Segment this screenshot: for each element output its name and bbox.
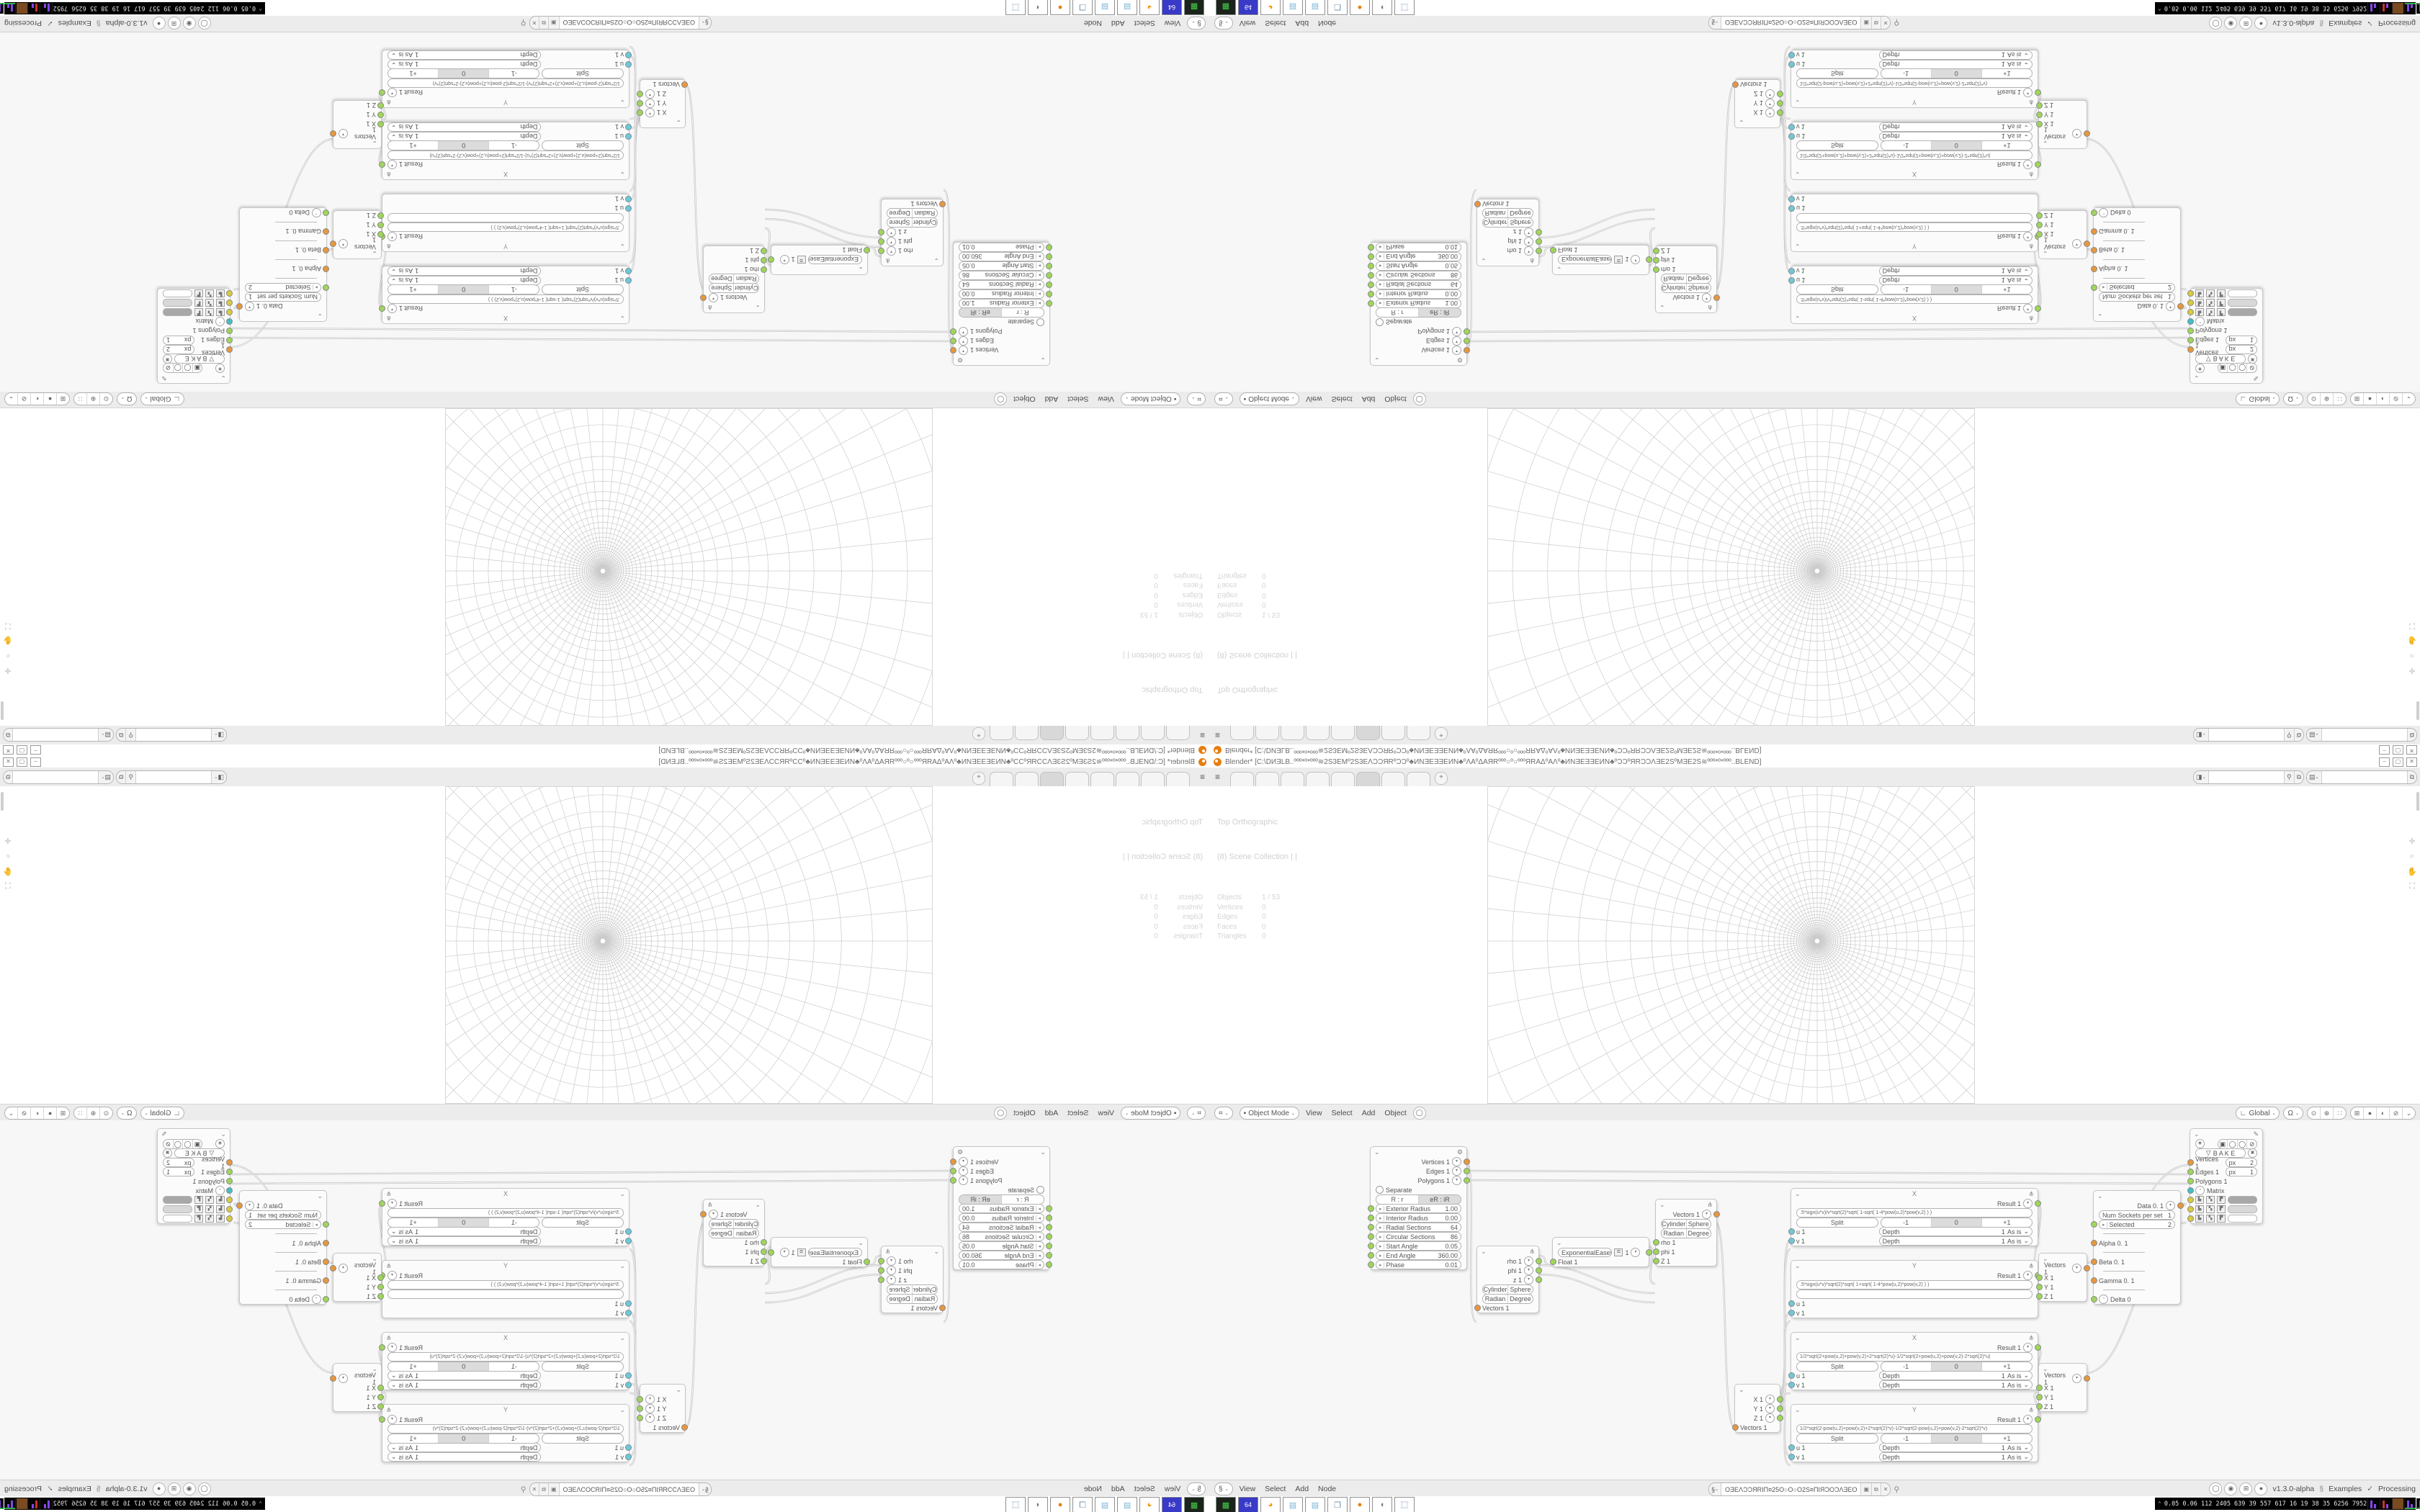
node-f3[interactable]: ⌄X⋔Result 1▾1/2*sqrt(2+pow(u,2)+pow(v,2)… [1791, 122, 2038, 180]
depth-dropdown[interactable]: Depth1As is⌄ [1879, 132, 2033, 141]
scene-name-field[interactable] [136, 729, 211, 741]
processing-toggle[interactable]: Processing [2378, 1485, 2416, 1493]
scene-picker[interactable]: ◨⌄ ⚲ ⧉ [2193, 770, 2304, 784]
node-polar_out[interactable]: ⌄⋔rho 1▾phi 1▾z 1▾CylinderSphereRadianDe… [881, 199, 944, 266]
formula-input[interactable] [1796, 1290, 2033, 1299]
socket-green[interactable] [1777, 1396, 1783, 1403]
px-size-field[interactable]: px2 [2226, 1158, 2257, 1167]
socket-green[interactable] [637, 1396, 644, 1403]
px-size-field[interactable]: px2 [163, 1158, 194, 1167]
number-field[interactable]: Num Sockets per set1 [245, 1210, 321, 1220]
socket-orange[interactable] [951, 347, 957, 354]
sverchok-header-button[interactable]: ● [153, 17, 166, 30]
floppy-64-icon[interactable]: 64 [1238, 0, 1258, 15]
socket-green[interactable] [1536, 229, 1542, 235]
split-button[interactable]: Split [542, 1362, 624, 1372]
socket-green[interactable] [2036, 121, 2043, 127]
gizmo-icon[interactable]: ⌕ [2407, 852, 2417, 861]
floppy-64-icon[interactable]: 64 [1162, 0, 1182, 15]
toggle-pair[interactable]: CylinderSphere [709, 1219, 759, 1229]
sverchok-header-button[interactable]: ◉ [183, 1482, 196, 1495]
viewport-menu-item[interactable]: Object [1384, 395, 1406, 403]
viewport-gizmos[interactable]: ✛⌕✋⛶ [2407, 621, 2417, 675]
emulator-icon[interactable]: ▦ [1216, 0, 1236, 15]
ease-mode-dropdown[interactable]: ExponentialEaseIn⌄ [808, 1248, 862, 1257]
firefox-icon[interactable]: ◕ [1260, 0, 1281, 15]
socket-orange[interactable] [701, 1211, 707, 1218]
socket-green[interactable] [2036, 1394, 2043, 1400]
toggle-pair[interactable]: R : reR : iR [959, 1194, 1044, 1205]
fake-user-icon[interactable]: ▣ [1860, 1483, 1871, 1495]
socket-orange[interactable] [2084, 130, 2090, 137]
examples-menu[interactable]: Examples [2329, 19, 2362, 27]
mode-dropdown[interactable]: ▪Object Mode⌄ [1121, 392, 1180, 405]
node-editor-menu-item[interactable]: View [1165, 19, 1181, 27]
depth-dropdown[interactable]: Depth1As is⌄ [387, 60, 541, 69]
socket-orange[interactable] [2177, 303, 2184, 310]
socket-green[interactable] [2036, 212, 2043, 219]
workspace-tab[interactable] [1255, 726, 1279, 740]
node-torus[interactable]: ⌄⚙Vertices 1▾Edges 1▾Polygons 1▾Separate… [953, 1146, 1050, 1270]
socket-green[interactable] [1368, 1243, 1374, 1249]
socket-green[interactable] [637, 109, 644, 116]
number-field[interactable]: ▸Phase0.01 [1376, 243, 1461, 252]
workspace-tab[interactable] [990, 772, 1013, 786]
node-vecin2[interactable]: ⌄Vectors 1▾X 1Y 1Z 1 [333, 1363, 382, 1412]
orientation-dropdown[interactable]: ∟Global⌄ [2236, 1107, 2280, 1120]
formula-input[interactable]: 1/2*sqrt(2+pow(u,2)+pow(v,2)+2*sqrt(2)*u… [387, 150, 624, 160]
speaker-icon[interactable]: ◖ [1028, 0, 1048, 15]
split-button[interactable]: Split [1796, 69, 1878, 79]
socket-green[interactable] [1464, 1177, 1470, 1184]
unlink-icon[interactable]: ✕ [1881, 1483, 1891, 1495]
examples-menu[interactable]: Examples [2329, 1485, 2362, 1493]
viewport-menu-item[interactable]: View [1306, 395, 1322, 403]
number-field[interactable]: ▸Start Angle0.05 [1376, 261, 1461, 271]
node-easein[interactable]: ⌄ExponentialEaseIn⌄⧉1▾Float 1 [1552, 245, 1649, 275]
node-viewer[interactable]: ⌄✎◉▣◯◯⊘▽B A K E▣Vertices 1px2Edges 1px1P… [2190, 288, 2263, 384]
gizmo-icon[interactable]: ⛶ [2407, 621, 2417, 630]
number-field[interactable]: ▸Exterior Radius1.00 [1376, 1204, 1461, 1213]
viewport-gizmos[interactable]: ✛⌕✋⛶ [2407, 837, 2417, 891]
node-header[interactable]: ⌄X⋔ [382, 169, 629, 179]
socket-green[interactable] [1777, 1415, 1783, 1421]
node-f2[interactable]: ⌄Y⋔Result 1▾.5*sign(u*v)*sqrt(2)*sqrt( 1… [1791, 1260, 2038, 1318]
node-header[interactable]: ⌄⋔ [1477, 256, 1538, 266]
socket-green[interactable] [380, 1416, 386, 1423]
socket-cyan[interactable] [1788, 277, 1795, 284]
scrollbar-nub[interactable] [2416, 792, 2419, 811]
socket-green[interactable] [1368, 1261, 1374, 1268]
depth-dropdown[interactable]: Depth1As is⌄ [1879, 1380, 2033, 1390]
toggle-pair[interactable]: RadianDegree [709, 1228, 759, 1238]
number-field[interactable]: ▸Start Angle0.05 [959, 261, 1044, 271]
fake-user-icon[interactable]: ▣ [1860, 17, 1871, 29]
node-editor-menu-item[interactable]: Add [1111, 1485, 1125, 1493]
node-torus[interactable]: ⌄⚙Vertices 1▾Edges 1▾Polygons 1▾Separate… [953, 242, 1050, 366]
split-button[interactable]: Split [1796, 1434, 1878, 1444]
blender-icon[interactable]: ● [1350, 0, 1370, 15]
socket-green[interactable] [1464, 328, 1470, 335]
socket-green[interactable] [1653, 257, 1659, 264]
color-swatch[interactable] [163, 289, 192, 297]
sverchok-header-button[interactable]: ◉ [2224, 1482, 2237, 1495]
node-header[interactable]: ⌄Y⋔ [382, 1405, 629, 1415]
socket-green[interactable] [2187, 1178, 2194, 1184]
depth-dropdown[interactable]: Depth1As is⌄ [387, 1236, 541, 1246]
sverchok-header-button[interactable]: ⊞ [168, 1482, 181, 1495]
toggle-pair[interactable]: RadianDegree [1482, 1294, 1533, 1304]
socket-green[interactable] [1646, 1249, 1652, 1256]
sverchok-header-button[interactable]: ◉ [2224, 17, 2237, 30]
socket-orange[interactable] [2187, 1159, 2194, 1166]
depth-dropdown[interactable]: Depth1As is⌄ [1879, 266, 2033, 276]
socket-green[interactable] [768, 256, 775, 263]
workspace-tab[interactable] [1116, 772, 1139, 786]
socket-green[interactable] [879, 1267, 885, 1274]
sverchok-header-button[interactable]: ● [2254, 17, 2267, 30]
workspace-tab[interactable] [1331, 726, 1355, 740]
minimize-button[interactable]: – [30, 745, 41, 755]
node-f1[interactable]: ⌄X⋔Result 1▾.5*sign(u*v)/v*sqrt(2)*sqrt(… [1791, 1188, 2038, 1246]
offset-stepper[interactable]: -10+1 [1881, 141, 2033, 151]
number-field[interactable]: ▸Exterior Radius1.00 [959, 299, 1044, 308]
socket-green[interactable] [637, 1405, 644, 1412]
display-mode-icons[interactable]: ▣◯◯⊘ [2218, 364, 2257, 374]
socket-orange[interactable] [1713, 1211, 1720, 1218]
socket-green[interactable] [1536, 1277, 1542, 1283]
viewport-3d[interactable]: Top Orthographic (8) Scene Collection | … [1210, 408, 2420, 726]
viewport-menu-item[interactable]: View [1098, 1109, 1114, 1117]
node-vecout[interactable]: ⌄X 1▾Y 1▾Z 1▾Vectors 1 [640, 79, 686, 128]
socket-green[interactable] [2035, 161, 2041, 168]
node-torus[interactable]: ⌄⚙Vertices 1▾Edges 1▾Polygons 1▾Separate… [1370, 1146, 1467, 1270]
number-field[interactable]: Num Sockets per set1 [2099, 1210, 2175, 1220]
node-editor-menu-item[interactable]: View [1165, 1485, 1181, 1493]
sverchok-header-button[interactable]: ◯ [198, 1482, 211, 1495]
node-easein[interactable]: ⌄ExponentialEaseIn⌄⧉1▾Float 1 [771, 245, 868, 275]
node-header[interactable]: ⌄Y⋔ [382, 1261, 629, 1271]
node-f3[interactable]: ⌄X⋔Result 1▾1/2*sqrt(2+pow(u,2)+pow(v,2)… [1791, 1332, 2038, 1390]
socket-orange[interactable] [1464, 347, 1470, 354]
node-header[interactable]: ⌄X⋔ [1791, 313, 2038, 323]
node-easein[interactable]: ⌄ExponentialEaseIn⌄⧉1▾Float 1 [1552, 1237, 1649, 1267]
sverchok-header-button[interactable]: ◉ [183, 17, 196, 30]
split-button[interactable]: Split [1796, 1362, 1878, 1372]
number-field[interactable]: ▸Start Angle0.05 [959, 1241, 1044, 1251]
checkbox[interactable] [1376, 318, 1384, 326]
view-layer-picker[interactable]: ▤⌄ ⧉ [3, 770, 114, 784]
socket-green[interactable] [2036, 222, 2043, 228]
depth-dropdown[interactable]: Depth1As is⌄ [1879, 276, 2033, 285]
socket-orange[interactable] [331, 1375, 337, 1382]
node-header[interactable]: ⌄Y⋔ [382, 241, 629, 251]
sverchok-header-button[interactable]: ◯ [198, 17, 211, 30]
node-data[interactable]: ⌄Data 0. 1▾Num Sockets per set1▸Selected… [239, 207, 327, 322]
socket-green[interactable] [2187, 337, 2194, 343]
add-workspace-button[interactable]: + [972, 772, 985, 785]
toggle-pair[interactable]: CylinderSphere [1482, 1284, 1533, 1295]
socket-green[interactable] [2035, 1416, 2041, 1423]
split-button[interactable]: Split [542, 285, 624, 295]
node-header[interactable]: ⌄ [640, 1385, 685, 1395]
notepad-icon[interactable]: ▤ [1305, 0, 1325, 15]
node-f4[interactable]: ⌄Y⋔Result 1▾1/2*sqrt(2-pow(u,2)+pow(v,2)… [1791, 1404, 2038, 1462]
gizmo-icon[interactable]: ✋ [3, 636, 13, 645]
workspace-tab[interactable] [1281, 772, 1304, 786]
menu-hamburger-icon[interactable]: ≡ [1200, 772, 1205, 782]
scene-name-field[interactable] [2209, 771, 2284, 783]
socket-green[interactable] [2036, 1293, 2043, 1300]
viewport-menu-item[interactable]: Object [1013, 1109, 1035, 1117]
gizmo-icon[interactable]: ⌕ [2407, 651, 2417, 660]
sverchok-header-button[interactable]: ◯ [2209, 17, 2222, 30]
node-header[interactable]: ⌄Y⋔ [382, 97, 629, 107]
node-header[interactable]: ⌄ [640, 117, 685, 127]
number-field[interactable]: ▸Radial Sections64 [959, 280, 1044, 289]
menu-hamburger-icon[interactable]: ≡ [1215, 772, 1220, 782]
offset-stepper[interactable]: -10+1 [1881, 1434, 2033, 1444]
processing-toggle[interactable]: Processing [4, 19, 42, 27]
split-button[interactable]: Split [1796, 1218, 1878, 1228]
socket-green[interactable] [2035, 1344, 2041, 1351]
node-editor-type-button[interactable]: §⌄ [1187, 1482, 1206, 1495]
mode-dropdown[interactable]: ▪Object Mode⌄ [1121, 1107, 1180, 1120]
notepad-icon[interactable]: ▤ [1095, 1497, 1115, 1512]
node-editor[interactable]: ⌄⚙Vertices 1▾Edges 1▾Polygons 1▾Separate… [1210, 1120, 2420, 1480]
workspace-tab[interactable] [1255, 772, 1279, 786]
split-button[interactable]: Split [542, 1434, 624, 1444]
node-vecout[interactable]: ⌄X 1▾Y 1▾Z 1▾Vectors 1 [1734, 1384, 1780, 1433]
formula-input[interactable]: 1/2*sqrt(2-pow(u,2)+pow(v,2)+2*sqrt(2)*v… [387, 78, 624, 88]
socket-cyan[interactable] [1788, 196, 1795, 202]
node-header[interactable]: ⌄Y⋔ [1791, 1261, 2038, 1271]
px-size-field[interactable]: px1 [163, 1167, 194, 1176]
node-editor-menu-item[interactable]: Select [1265, 1485, 1286, 1493]
node-editor-menu-item[interactable]: Select [1134, 1485, 1155, 1493]
checkbox[interactable] [1036, 318, 1044, 326]
depth-dropdown[interactable]: Depth1As is⌄ [387, 1443, 541, 1452]
toggle-pair[interactable]: CylinderSphere [887, 1284, 938, 1295]
formula-input[interactable]: 1/2*sqrt(2-pow(u,2)+pow(v,2)+2*sqrt(2)*v… [1796, 78, 2033, 88]
socket-green[interactable] [1368, 1224, 1374, 1230]
split-button[interactable]: Split [1796, 141, 1878, 151]
proportional-edit-icons[interactable]: ⊙⊕∷ [73, 1107, 113, 1120]
depth-dropdown[interactable]: Depth1As is⌄ [1879, 122, 2033, 132]
blender-icon[interactable]: ● [1050, 1497, 1070, 1512]
tool-circle-icon[interactable]: ◯ [994, 392, 1007, 405]
ease-mode-dropdown[interactable]: ExponentialEaseIn⌄ [1558, 255, 1612, 264]
node-data[interactable]: ⌄Data 0. 1▾Num Sockets per set1▸Selected… [2093, 207, 2181, 322]
socket-green[interactable] [380, 161, 386, 168]
scene-name-field[interactable] [136, 771, 211, 783]
socket-orange[interactable] [1732, 1424, 1739, 1431]
window2-icon[interactable]: ⿴ [1005, 0, 1026, 15]
socket-green[interactable] [2035, 305, 2041, 312]
socket-cyan[interactable] [1788, 133, 1795, 140]
socket-green[interactable] [951, 328, 957, 335]
processing-toggle[interactable]: Processing [2378, 19, 2416, 27]
socket-green[interactable] [1777, 100, 1783, 107]
node-data[interactable]: ⌄Data 0. 1▾Num Sockets per set1▸Selected… [239, 1190, 327, 1305]
display-mode-icons[interactable]: ▣◯◯⊘ [163, 1139, 202, 1149]
toggle-pair[interactable]: RadianDegree [887, 209, 938, 219]
scene-pin-icon[interactable]: ⚲ [126, 771, 136, 783]
socket-cyan[interactable] [1788, 205, 1795, 212]
node-header[interactable]: ⌄ [771, 264, 867, 274]
number-field[interactable]: ▸Selected2 [245, 1220, 321, 1229]
node-header[interactable]: ⌄ [2094, 1191, 2180, 1201]
minimize-button[interactable]: – [2379, 757, 2390, 767]
formula-input[interactable]: 1/2*sqrt(2-pow(u,2)+pow(v,2)+2*sqrt(2)*v… [1796, 1424, 2033, 1434]
px-size-field[interactable]: px1 [2226, 1167, 2257, 1176]
toggle-pair[interactable]: CylinderSphere [1482, 218, 1533, 228]
workspace-tab[interactable] [1281, 726, 1304, 740]
split-button[interactable]: Split [542, 69, 624, 79]
proportional-edit-icons[interactable]: ⊙⊕∷ [2307, 392, 2347, 405]
color-swatch[interactable] [163, 1205, 192, 1213]
node-header[interactable]: ⌄✎ [158, 373, 230, 383]
speaker-icon[interactable]: ◖ [1028, 1497, 1048, 1512]
toggle-pair[interactable]: RadianDegree [1661, 274, 1711, 284]
scene-picker[interactable]: ◨⌄ ⚲ ⧉ [116, 728, 227, 742]
depth-dropdown[interactable]: Depth1As is⌄ [387, 132, 541, 141]
viewport-menu-item[interactable]: Add [1362, 1109, 1376, 1117]
orientation-dropdown[interactable]: ∟Global⌄ [2236, 392, 2280, 405]
node-header[interactable]: ⌄⋔ [1477, 1246, 1538, 1256]
socket-green[interactable] [879, 238, 885, 245]
node-header[interactable]: ⌄⋔ [704, 302, 764, 312]
socket-yellow[interactable] [2187, 300, 2194, 306]
viewport-menu-item[interactable]: Add [1045, 1109, 1059, 1117]
viewport-menu-item[interactable]: Add [1362, 395, 1376, 403]
socket-orange[interactable] [2091, 266, 2097, 272]
node-polar_out[interactable]: ⌄⋔rho 1▾phi 1▾z 1▾CylinderSphereRadianDe… [1476, 199, 1539, 266]
minimize-button[interactable]: – [30, 757, 41, 767]
node-f1[interactable]: ⌄X⋔Result 1▾.5*sign(u*v)/v*sqrt(2)*sqrt(… [1791, 266, 2038, 324]
notepad-icon[interactable]: ▤ [1117, 0, 1137, 15]
blender-icon[interactable]: ● [1350, 1497, 1370, 1512]
node-header[interactable]: ⌄ [1553, 1238, 1649, 1248]
workspace-tab[interactable] [1166, 772, 1190, 786]
depth-dropdown[interactable]: Depth1As is⌄ [1879, 1443, 2033, 1452]
node-header[interactable]: ⌄⋔ [1656, 1200, 1716, 1210]
number-field[interactable]: ▸End Angle360.00 [959, 1251, 1044, 1260]
socket-yellow[interactable] [2187, 309, 2194, 315]
toggle-pair[interactable]: CylinderSphere [709, 284, 759, 294]
fake-user-icon[interactable]: ▣ [549, 1483, 560, 1495]
socket-orange[interactable] [331, 130, 337, 137]
editor-type-button[interactable]: ⌗⌄ [1214, 392, 1233, 405]
formula-input[interactable]: 1/2*sqrt(2+pow(u,2)+pow(v,2)+2*sqrt(2)*u… [387, 1352, 624, 1362]
view-layer-picker[interactable]: ▤⌄ ⧉ [2306, 770, 2417, 784]
proportional-edit-icons[interactable]: ⊙⊕∷ [2307, 1107, 2347, 1120]
node-polar_in[interactable]: ⌄⋔Vectors 1▾CylinderSphereRadianDegreerh… [1655, 1199, 1717, 1266]
socket-cyan[interactable] [1788, 268, 1795, 274]
socket-cyan[interactable] [1788, 1372, 1795, 1379]
workspace-tab[interactable] [1356, 772, 1380, 786]
socket-green[interactable] [380, 89, 386, 96]
node-header[interactable]: ⌄⚙ [1371, 355, 1466, 365]
workspace-tab[interactable] [1407, 772, 1430, 786]
restore-button[interactable]: ▢ [2393, 757, 2403, 767]
gizmo-icon[interactable]: ✋ [2407, 636, 2417, 645]
shading-mode-icons[interactable]: ⊞●◐⊘⌄ [4, 392, 70, 405]
depth-dropdown[interactable]: Depth1As is⌄ [387, 122, 541, 132]
socket-orange[interactable] [701, 294, 707, 301]
workspace-tab[interactable] [1306, 726, 1330, 740]
viewport-menu-item[interactable]: Object [1384, 1109, 1406, 1117]
node-vecin1[interactable]: ⌄Vectors 1▾X 1Y 1Z 1 [333, 1253, 382, 1302]
node-header[interactable]: ⌄X⋔ [382, 1189, 629, 1199]
socket-green[interactable] [2036, 112, 2043, 118]
workspace-tab[interactable] [1015, 726, 1039, 740]
window-icon[interactable]: ❐ [1327, 0, 1348, 15]
socket-green[interactable] [1777, 1405, 1783, 1412]
socket-cyan[interactable] [1788, 1228, 1795, 1235]
gizmo-icon[interactable]: ✛ [3, 666, 13, 675]
socket-green[interactable] [380, 305, 386, 312]
node-polar_out[interactable]: ⌄⋔rho 1▾phi 1▾z 1▾CylinderSphereRadianDe… [1476, 1246, 1539, 1313]
socket-green[interactable] [2035, 1200, 2041, 1207]
socket-orange[interactable] [2091, 1240, 2097, 1246]
socket-green[interactable] [1368, 253, 1374, 260]
checkbox[interactable] [1376, 1186, 1384, 1194]
socket-orange[interactable] [1474, 201, 1481, 207]
socket-orange[interactable] [1474, 1305, 1481, 1311]
proportional-edit-icons[interactable]: ⊙⊕∷ [73, 392, 113, 405]
number-field[interactable]: ▸Circular Sections86 [1376, 271, 1461, 280]
view-layer-field[interactable] [2322, 729, 2407, 741]
socket-green[interactable] [2036, 1403, 2043, 1410]
view-layer-field[interactable] [13, 771, 98, 783]
sverchok-header-button[interactable]: ● [153, 1482, 166, 1495]
node-editor[interactable]: ⌄⚙Vertices 1▾Edges 1▾Polygons 1▾Separate… [0, 1120, 1210, 1480]
formula-input[interactable] [387, 1290, 624, 1299]
formula-input[interactable]: .5*sign(u*v)*sqrt(2)*sqrt( 1+sqrt( 1-4*p… [387, 1280, 624, 1290]
toggle-pair[interactable]: CylinderSphere [1661, 284, 1711, 294]
socket-green[interactable] [1368, 1233, 1374, 1240]
depth-dropdown[interactable]: Depth1As is⌄ [387, 266, 541, 276]
socket-green[interactable] [637, 100, 644, 107]
window2-icon[interactable]: ⿴ [1005, 1497, 1026, 1512]
number-field[interactable]: ▸Selected2 [245, 283, 321, 292]
workspace-tab[interactable] [1381, 726, 1405, 740]
socket-green[interactable] [1368, 272, 1374, 279]
gizmo-icon[interactable]: ✛ [2407, 666, 2417, 675]
node-vecin1[interactable]: ⌄Vectors 1▾X 1Y 1Z 1 [333, 210, 382, 259]
workspace-tab[interactable] [990, 726, 1013, 740]
socket-orange[interactable] [2091, 1259, 2097, 1265]
close-button[interactable]: ✕ [2406, 745, 2417, 755]
socket-green[interactable] [951, 1168, 957, 1174]
workspace-tab[interactable] [1040, 772, 1064, 786]
fake-user-icon[interactable]: ▣ [549, 17, 560, 29]
firefox-icon[interactable]: ◕ [1139, 0, 1160, 15]
socket-cyan[interactable] [1788, 124, 1795, 130]
node-editor-menu-item[interactable]: Add [1111, 19, 1125, 27]
node-header[interactable]: ⌄ [1553, 264, 1649, 274]
snap-button[interactable]: Ω⌄ [2283, 392, 2303, 405]
node-vecin2[interactable]: ⌄Vectors 1▾X 1Y 1Z 1 [2038, 1363, 2087, 1412]
socket-green[interactable] [1536, 1267, 1542, 1274]
socket-yellow[interactable] [2187, 290, 2194, 297]
close-button[interactable]: ✕ [2406, 757, 2417, 767]
sverchok-header-button[interactable]: ⊞ [2239, 1482, 2252, 1495]
node-editor-menu-item[interactable]: Node [1318, 1485, 1336, 1493]
toggle-pair[interactable]: RadianDegree [887, 1294, 938, 1304]
tree-selector[interactable]: §⌄ OƎEΛƆƆЯRIΠ¤25O○O○O2S¤ΠIЯƆOƆΛƎEO ▣ ⧉ ✕ [1708, 1482, 1891, 1496]
